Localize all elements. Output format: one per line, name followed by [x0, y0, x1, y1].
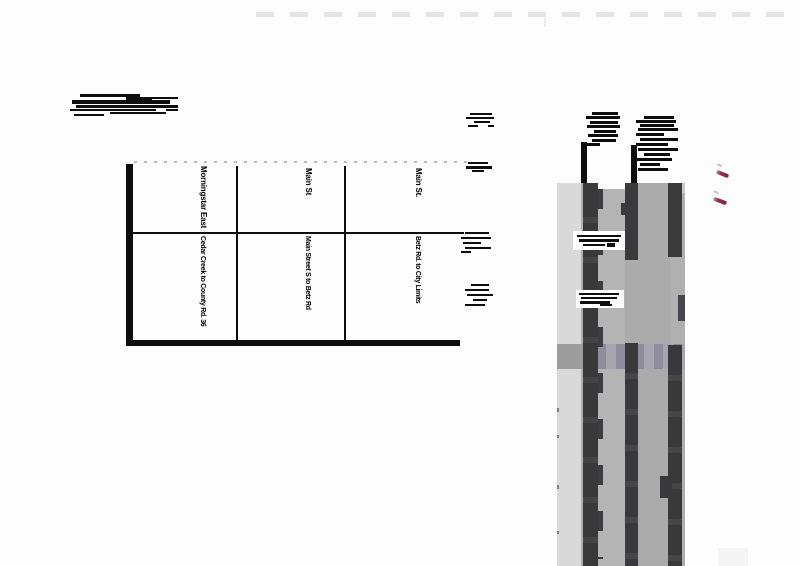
photo-edge-tick-1 [557, 408, 559, 412]
illegible-note-4 [465, 283, 493, 309]
table-row-divider [128, 232, 464, 234]
table-bottom-thick-border [126, 340, 460, 346]
page-top-tick-mark [544, 18, 546, 27]
red-checkmark-1 [716, 170, 730, 179]
photo-dark-stripe-3-upper [668, 183, 682, 257]
illegible-heading-scribble [70, 94, 178, 118]
photo-label-box-1 [573, 231, 625, 250]
photo-dark-stripe-2-upper [625, 183, 638, 260]
illegible-figure-label-b [636, 116, 678, 174]
illegible-figure-label-a [586, 112, 622, 148]
table-column-divider-1 [236, 166, 238, 340]
table-top-dotted-border [134, 161, 470, 163]
table-cell-segment-3: Betz Rd. to City Limits [414, 236, 421, 303]
scanned-document-page: Morningstar East Cedar Creek to County R… [0, 0, 800, 566]
table-cell-street-1: Morningstar East [199, 166, 207, 228]
table-left-thick-border [126, 164, 133, 346]
table-column-divider-2 [344, 166, 346, 340]
photo-dark-stripe-2-lower [625, 343, 638, 566]
red-checkmark-2 [713, 197, 728, 206]
photo-edge-tick-4 [557, 531, 559, 534]
photo-edge-tick-2 [557, 435, 559, 438]
photo-label-box-2 [576, 290, 624, 308]
illegible-note-2 [466, 161, 494, 173]
table-cell-street-3: Main St. [414, 168, 422, 197]
table-cell-street-2: Main St [304, 168, 312, 195]
table-cell-segment-2: Main Street S to Betz Rd [304, 236, 311, 310]
scan-artifact-blob [718, 548, 748, 566]
photo-edge-tick-3 [557, 485, 559, 489]
aerial-photo-region [557, 183, 685, 566]
page-top-dashed-edge [256, 12, 800, 17]
illegible-note-1 [466, 112, 496, 130]
table-cell-segment-1: Cedar Creek to County Rd. 36 [199, 236, 206, 326]
photo-dark-stripe-3-lower [668, 345, 682, 566]
photo-dark-stripe-3-sliver [678, 295, 685, 321]
photo-dark-notch [660, 476, 672, 498]
illegible-note-3 [461, 231, 493, 255]
